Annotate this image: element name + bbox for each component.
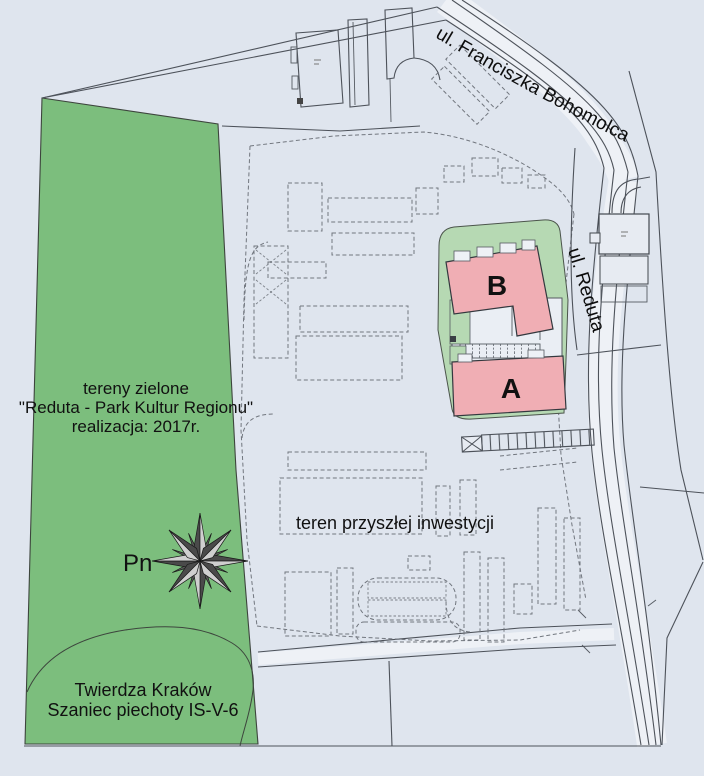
compass-north-label: Pn	[123, 550, 152, 577]
park-label-line3: realizacja: 2017r.	[72, 417, 201, 436]
site-plan-canvas: B A Pn ter	[0, 0, 704, 776]
building-detail	[297, 98, 303, 104]
fort-label-line2: Szaniec piechoty IS-V-6	[47, 700, 238, 720]
park-label-line1: tereny zielone	[83, 379, 189, 398]
fort-label-line1: Twierdza Kraków	[74, 680, 212, 700]
site-plan-map: B A Pn ter	[0, 0, 704, 776]
building-a-label: A	[501, 373, 521, 404]
building-complex: B A	[438, 220, 568, 419]
future-area-label: teren przyszłej inwestycji	[296, 513, 494, 533]
courtyard-detail	[450, 336, 456, 342]
building-b-label: B	[487, 270, 507, 301]
park-label-line2: "Reduta - Park Kultur Regionu"	[19, 398, 253, 417]
